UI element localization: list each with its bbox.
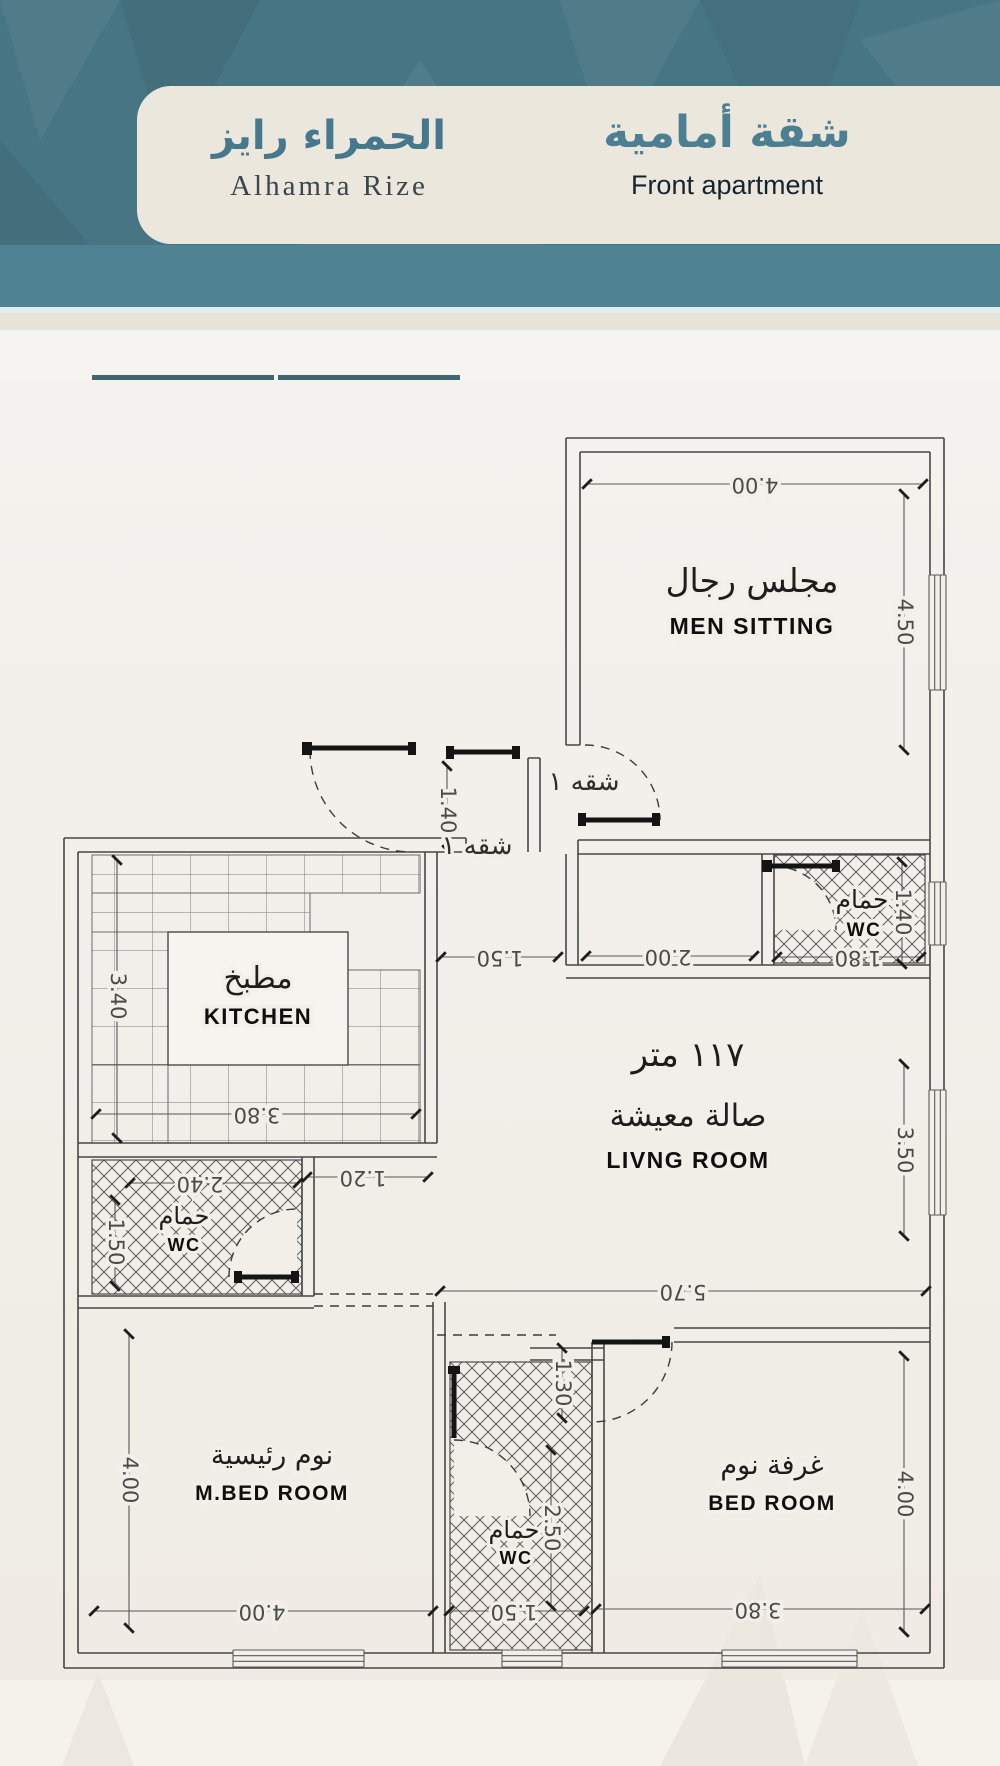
bedroom-label-ar: غرفة نوم (720, 1450, 823, 1481)
project-title: الحمراء رايز Alhamra Rize (179, 108, 479, 203)
dim-master-width: 4.00 (239, 1600, 286, 1624)
divider-strip (0, 313, 1000, 330)
floor-plan-poster: الحمراء رايز Alhamra Rize شقة أمامية Fro… (0, 0, 1000, 1766)
living-area-label: ١١٧ متر (630, 1035, 745, 1075)
dim-kitchen-width: 3.80 (234, 1103, 281, 1127)
dim-wc-left-width: 2.40 (177, 1172, 224, 1196)
wc-left-label-ar: حمام (159, 1202, 210, 1230)
dim-hall-width: 2.00 (645, 945, 692, 969)
living-label-ar: صالة معيشة (610, 1098, 767, 1134)
dim-wc-top-width: 1.80 (835, 946, 882, 970)
wc-bottom-label-en: WC (500, 1548, 533, 1568)
window-master-bottom (233, 1649, 364, 1667)
men-sitting-label-en: MEN SITTING (670, 613, 835, 639)
header-subband (0, 245, 1000, 307)
bedroom-label-en: BED ROOM (708, 1492, 836, 1515)
dim-wc-bottom-width: 1.50 (491, 1600, 538, 1624)
project-title-en: Alhamra Rize (179, 170, 479, 203)
window-living-right-1 (928, 882, 946, 945)
dim-corridor-width: 1.50 (477, 946, 524, 970)
window-men-right (928, 575, 946, 690)
dim-hall-door-width: 1.30 (551, 1360, 575, 1407)
window-wc-bottom (502, 1649, 562, 1667)
living-label-en: LIVNG ROOM (606, 1147, 769, 1173)
dim-bedroom-height: 4.00 (893, 1471, 917, 1518)
unit-title-en: Front apartment (562, 170, 892, 201)
dim-kitchen-height: 3.40 (106, 973, 130, 1020)
wc-top-label-ar: حمام (835, 885, 888, 914)
dim-passage-width: 1.20 (340, 1166, 387, 1190)
unit-title: شقة أمامية Front apartment (562, 102, 892, 201)
dim-bedroom-width: 3.80 (735, 1598, 782, 1622)
dim-entry-depth: 1.40 (436, 787, 460, 834)
dim-men-width: 4.00 (732, 473, 779, 497)
unit-title-ar: شقة أمامية (562, 102, 892, 164)
kitchen-island (168, 932, 348, 1065)
apartment-label-2: شقه ١ (441, 831, 512, 861)
window-living-right-2 (928, 1090, 946, 1215)
wc-bottom-label-ar: حمام (489, 1516, 540, 1544)
dim-wc-bottom-height: 2.50 (540, 1505, 564, 1552)
dim-master-height: 4.00 (118, 1457, 142, 1504)
dim-wc-top-height: 1.40 (891, 889, 915, 936)
dim-living-width: 5.70 (660, 1280, 707, 1304)
wc-left-label-en: WC (168, 1235, 201, 1255)
men-sitting-label-ar: مجلس رجال (666, 561, 839, 600)
apartment-label-1: شقه ١ (548, 767, 619, 797)
floor-plan: 4.00 4.50 1.40 1.50 2.00 1.80 1.40 3.40 … (0, 380, 1000, 1766)
master-bed-label-en: M.BED ROOM (195, 1482, 349, 1505)
dim-wc-left-height: 1.50 (104, 1219, 128, 1266)
dim-men-height: 4.50 (893, 599, 917, 646)
window-bedroom-bottom (722, 1649, 857, 1667)
kitchen-label-en: KITCHEN (204, 1004, 312, 1029)
project-title-ar: الحمراء رايز (179, 108, 479, 164)
kitchen-label-ar: مطبخ (223, 961, 292, 996)
wc-top-label-en: WC (847, 920, 882, 941)
title-plate: الحمراء رايز Alhamra Rize شقة أمامية Fro… (137, 86, 1000, 244)
master-bed-label-ar: نوم رئيسية (211, 1440, 333, 1471)
dim-living-height: 3.50 (893, 1127, 917, 1174)
